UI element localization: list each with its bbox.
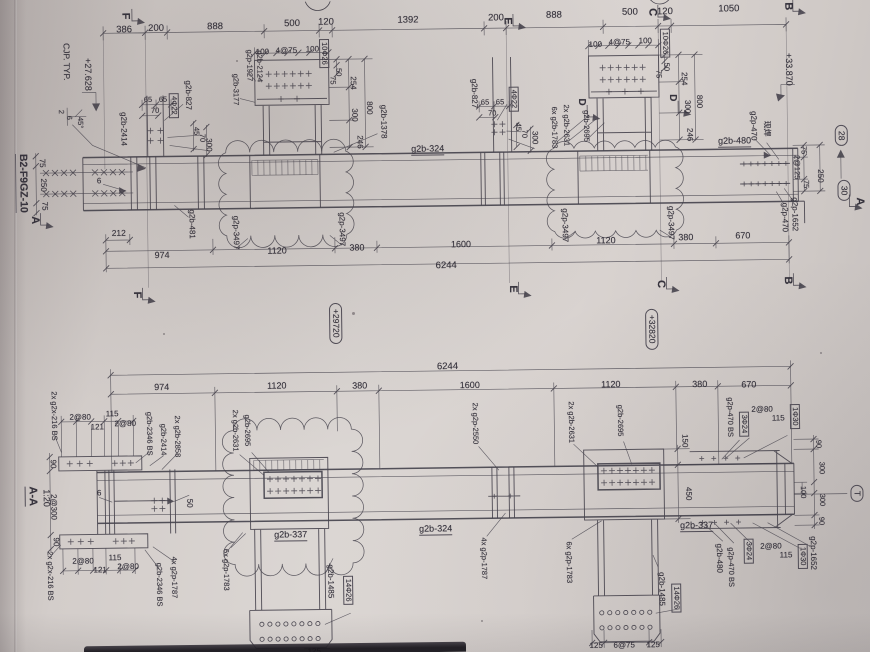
dim-label: 45°	[76, 117, 84, 128]
dim-label: 670	[735, 231, 750, 240]
dim-label: 10Φ26	[660, 29, 670, 58]
dim-label: 300	[350, 108, 358, 121]
dim-label: 1600	[451, 240, 471, 249]
part-label: g2b-2695	[582, 110, 590, 142]
dim-label: 1120	[596, 236, 615, 245]
part-label: g2b-827	[470, 79, 478, 108]
dim-label: 4@75	[276, 47, 298, 55]
dim-label: 380	[692, 380, 707, 389]
bubble-label: 30	[838, 180, 851, 202]
dim-label: 6244	[437, 362, 458, 372]
dim-label: 125	[646, 641, 659, 649]
part-label: g2b-481	[187, 209, 195, 238]
dim-label: 115	[106, 410, 119, 418]
dim-label: 6@75	[613, 641, 635, 649]
dim-label: 212	[112, 229, 126, 238]
grid-label: F	[119, 13, 130, 20]
dim-label: 115	[109, 554, 122, 562]
part-label: g2b-2346 BS	[145, 412, 153, 456]
drawing-labels: 38620088850012013922008885001201050FECBF…	[0, 0, 870, 652]
dim-label: 4Φ22	[169, 93, 179, 118]
dim-label: 90	[818, 517, 826, 525]
dim-label: 300	[818, 462, 826, 475]
dim-label: 380	[352, 381, 367, 390]
dim-label: 380	[349, 243, 364, 252]
note-label: CJP. TYP.	[62, 43, 71, 80]
dim-label: 115	[780, 551, 793, 559]
dim-label: 254	[680, 72, 688, 85]
part-label: g2p-3497	[560, 208, 568, 242]
grid-label: F	[131, 291, 142, 298]
dim-label: 14Φ26	[672, 583, 682, 612]
part-label: g2b-827	[184, 80, 192, 109]
part-label: 2x g2b-2631	[562, 104, 570, 146]
dim-label: 6	[97, 489, 102, 497]
dim-label: 1Φ30	[790, 404, 800, 429]
dim-label: 380	[678, 233, 693, 242]
part-label: g2b-2346 BS	[155, 563, 163, 607]
dim-label: 500	[622, 8, 638, 18]
grid-label: D	[667, 94, 677, 101]
elevation-label: +29720	[329, 303, 342, 344]
dim-label: 121	[91, 423, 104, 431]
part-label: 4x g2p-1787	[170, 557, 178, 599]
part-label: g2b-324	[411, 144, 444, 155]
part-label: 2x g2p-2550	[471, 403, 479, 445]
dim-label: 1600	[460, 381, 480, 390]
dim-label: 50	[663, 63, 671, 71]
dim-label: 300	[530, 131, 538, 144]
dim-label: 75	[655, 70, 663, 78]
grid-label: E	[501, 17, 512, 24]
dim-label: 2@80	[72, 557, 94, 565]
dim-label: 2@80	[760, 542, 782, 550]
part-label: 2x g2b-2858	[173, 415, 181, 457]
dim-label: 450	[684, 487, 692, 500]
part-label: g2b-2414	[160, 424, 168, 456]
dim-label: 121	[93, 566, 106, 574]
dim-label: 65	[159, 96, 167, 104]
dim-label: 6	[97, 177, 102, 185]
grid-label: A	[29, 216, 40, 224]
part-label: g2b-2414	[119, 112, 127, 146]
grid-label: A	[854, 197, 865, 205]
dim-label: 1050	[718, 4, 739, 14]
dim-label: 2@300	[49, 494, 57, 520]
dim-label: 75	[38, 159, 46, 168]
title-label: A-A	[25, 486, 38, 506]
part-label: g2b-480	[715, 544, 723, 573]
grid-label: E	[507, 285, 518, 292]
dim-label: 6244	[436, 261, 457, 271]
dim-label: 150	[680, 434, 688, 447]
dim-label: 100	[589, 41, 602, 49]
dim-label: 300	[683, 100, 691, 113]
paper-speck	[481, 620, 483, 622]
part-label: 2x g2b-2631	[567, 401, 575, 443]
dim-label: 115	[772, 414, 785, 422]
dim-label: 2@80	[69, 414, 91, 422]
part-label: g2p-1652	[790, 197, 798, 231]
part-label: 2x g2x-216 BS	[46, 551, 54, 600]
part-label: g2p-3497	[232, 216, 240, 250]
part-label: g2p-1652	[809, 536, 817, 570]
dim-label: 120	[657, 7, 673, 17]
part-label: g2b-1485	[326, 564, 334, 598]
dim-label: 4Φ22	[509, 87, 519, 112]
dim-label: 250	[816, 169, 824, 182]
part-label: 2x g2b-2631	[231, 410, 239, 452]
part-label: g2b-480	[718, 136, 751, 147]
dim-label: 200	[148, 24, 164, 34]
dim-label: 10Φ26	[319, 39, 329, 68]
dim-label: 888	[546, 11, 562, 21]
drawing-content: 38620088850012013922008885001201050FECBF…	[0, 0, 870, 652]
dim-label: 4@75	[609, 38, 631, 46]
dim-label: 75	[802, 180, 810, 188]
dim-label: 14Φ26	[344, 576, 354, 605]
dim-label: 2	[57, 110, 65, 114]
part-label: 6x g2p-1783	[565, 541, 573, 583]
part-label: 6x g2p-1783	[222, 549, 230, 591]
grid-label: C	[655, 280, 666, 288]
photographed-drawing-sheet: 38620088850012013922008885001201050FECBF…	[0, 0, 870, 652]
dim-label: 246	[355, 135, 363, 148]
dim-label: 974	[154, 251, 169, 260]
dim-label: 1392	[397, 15, 418, 25]
note-label: 现焊	[762, 121, 770, 137]
paper-fold-line	[14, 0, 17, 652]
grid-label: C	[646, 8, 657, 16]
part-label: g2b-324	[419, 524, 452, 535]
part-label: g2b-337	[274, 530, 307, 541]
dim-label: 100	[639, 37, 652, 45]
dim-label: 1120	[267, 381, 286, 390]
dim-label: 75	[800, 146, 808, 154]
dim-label: 65	[144, 96, 152, 104]
dim-label: 1120	[601, 380, 620, 389]
part-label: g2p-470	[749, 111, 757, 140]
grid-label: B	[782, 2, 793, 10]
dim-label: 65	[481, 99, 489, 107]
dim-label: 90	[815, 440, 823, 448]
part-label: g2b-2124	[256, 50, 264, 82]
part-label: g2b-3177	[232, 74, 240, 106]
dim-label: 75	[329, 76, 337, 84]
dim-label: 3Φ24	[739, 412, 749, 437]
dim-label: 100	[799, 486, 807, 499]
bubble-label: 28	[835, 125, 848, 147]
dim-label: 500	[284, 19, 300, 29]
dim-label: 254	[349, 76, 357, 89]
part-label: g2p-3497	[338, 212, 346, 246]
dim-label: 974	[154, 383, 169, 392]
part-label: g2b-1485	[657, 572, 665, 606]
part-label: g2p-3497	[666, 206, 674, 240]
dim-label: 2@125	[793, 155, 801, 179]
bubble-label: T	[851, 485, 864, 502]
dim-label: 246	[685, 128, 693, 141]
part-label: g2p-1927	[246, 50, 254, 82]
dim-label: 75	[40, 202, 48, 211]
dim-label: 250	[39, 178, 47, 191]
part-label: g2b-1378	[379, 105, 387, 139]
dim-label: 888	[207, 22, 223, 32]
dim-label: 50	[185, 499, 193, 508]
paper-speck	[820, 352, 822, 354]
part-label: g2p-470 BS	[727, 547, 735, 587]
part-label: g2p-470 BS	[726, 397, 734, 437]
dim-label: 300	[818, 494, 826, 507]
dim-label: 65	[496, 98, 504, 106]
dim-label: 125	[589, 642, 602, 650]
part-label: g2b-2695	[243, 415, 251, 447]
dim-label: 1Φ30	[798, 544, 808, 569]
part-label: g2p-470	[780, 203, 788, 232]
dim-label: 2@80	[751, 406, 773, 414]
dim-label: 70	[521, 130, 529, 138]
dim-label: 800	[695, 95, 703, 108]
part-label: 6x g2b-1783	[550, 107, 558, 149]
paper-speck	[236, 60, 238, 62]
part-label: 4x g2p-1787	[480, 537, 488, 579]
part-label: g2b-2695	[616, 405, 624, 437]
dim-label: 6	[65, 116, 73, 120]
dim-label: 70	[151, 107, 159, 115]
dim-label: 1120	[267, 246, 286, 255]
dim-label: 2@80	[114, 420, 136, 428]
dim-label: 3Φ24	[744, 539, 754, 564]
part-label: 2x g2x-216 BS	[50, 391, 58, 440]
dim-label: 800	[365, 101, 373, 114]
dim-label: 2@80	[117, 563, 139, 571]
dim-label: 70	[488, 109, 496, 117]
paper-speck	[352, 312, 355, 315]
elevation-label: +32820	[646, 309, 659, 350]
dim-label: 300	[205, 138, 213, 151]
paper-speck	[163, 333, 165, 335]
elevation-label: +27.628	[83, 58, 92, 91]
elevation-label: +33.870	[784, 53, 793, 86]
dim-label: 386	[116, 25, 132, 35]
dim-label: 100	[306, 45, 319, 53]
dim-label: 670	[741, 380, 756, 389]
grid-label: B	[782, 276, 793, 284]
dim-label: 90	[52, 537, 60, 546]
part-label: g2b-337	[680, 521, 713, 532]
grid-label: D	[576, 98, 586, 105]
dim-label: 90	[49, 460, 57, 469]
dim-label: 120	[318, 18, 334, 28]
title-label: B2-F9GZ-10	[15, 154, 28, 213]
